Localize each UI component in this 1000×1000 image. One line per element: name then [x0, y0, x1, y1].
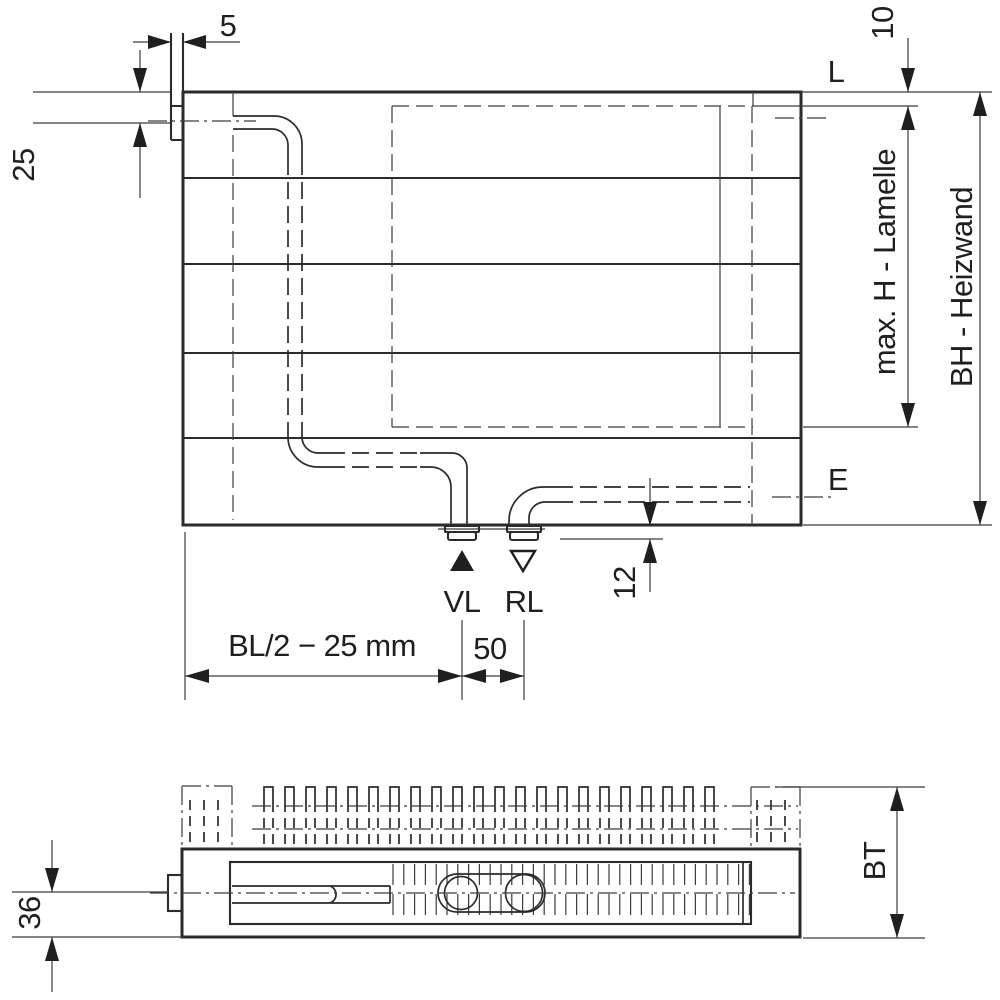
label-connection-level-e: E	[828, 462, 848, 497]
dim-center-to-face: 36	[12, 896, 47, 929]
dim-top-to-center: 25	[6, 148, 41, 181]
label-bt: BT	[857, 841, 892, 880]
dim-supply-position: BL/2 − 25 mm	[228, 628, 416, 663]
dim-connection-spacing: 50	[473, 631, 507, 666]
label-max-h-lamelle: max. H - Lamelle	[867, 149, 902, 375]
label-rl: RL	[505, 584, 544, 619]
label-connection-level-l: L	[828, 54, 845, 89]
dim-top-gap: 10	[865, 6, 900, 40]
dim-stub-projection: 12	[607, 566, 642, 599]
dim-bracket-thickness: 5	[220, 8, 237, 43]
radiator-technical-drawing: 5 25 10 L max. H - Lamelle BH - Heizwand…	[0, 0, 1000, 1000]
label-bh-heizwand: BH - Heizwand	[944, 187, 979, 387]
technical-drawing-page: 5 25 10 L max. H - Lamelle BH - Heizwand…	[0, 0, 1000, 1000]
label-vl: VL	[444, 584, 481, 619]
